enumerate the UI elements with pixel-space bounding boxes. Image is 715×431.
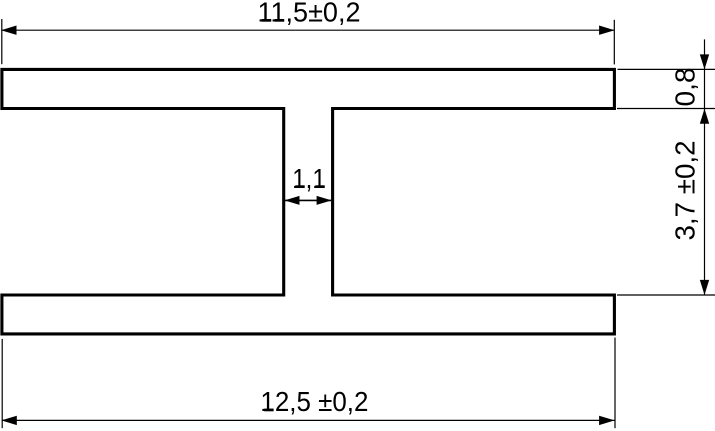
svg-text:1,1: 1,1 <box>292 163 326 194</box>
svg-text:0,8: 0,8 <box>669 68 700 107</box>
svg-text:11,5±0,2: 11,5±0,2 <box>258 0 361 28</box>
svg-text:3,7 ±0,2: 3,7 ±0,2 <box>669 141 700 241</box>
svg-text:12,5 ±0,2: 12,5 ±0,2 <box>260 386 368 417</box>
